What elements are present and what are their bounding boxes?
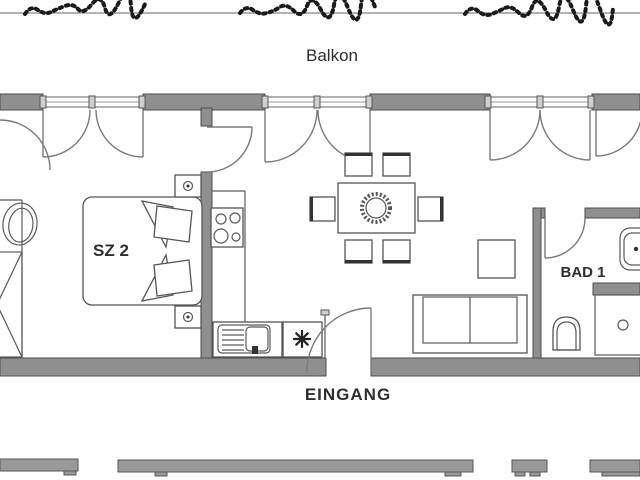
kitchen-sink-icon <box>213 322 282 357</box>
shower-icon <box>0 252 22 357</box>
toilet-icon <box>553 317 580 350</box>
garden-edge <box>0 0 640 25</box>
exterior-wall-bottom <box>0 358 640 376</box>
label-bedroom-2: SZ 2 <box>93 241 129 260</box>
shrub-row-icon <box>240 0 375 20</box>
floor-plan-drawing: Balkon SZ 2 BAD 1 EINGANG <box>0 0 640 480</box>
door-right-room <box>596 110 640 156</box>
shower-icon <box>595 295 640 355</box>
living-area <box>413 240 527 353</box>
coffee-table <box>478 240 515 278</box>
floor-plan-page: Balkon SZ 2 BAD 1 EINGANG <box>0 0 640 480</box>
balcony-french-door-3 <box>490 110 590 160</box>
balcony-door-glazing-2 <box>262 96 372 108</box>
balcony-door-glazing-1 <box>40 96 145 108</box>
shrub-row-icon <box>25 0 145 18</box>
stove-icon <box>211 208 243 247</box>
faucet-icon <box>252 346 258 354</box>
wall-bath-partition <box>593 283 640 295</box>
wall-living-bath <box>533 208 541 358</box>
balcony-door-glazing-3 <box>485 96 594 108</box>
balcony-french-door-1 <box>43 110 143 157</box>
door-bathroom-1 <box>545 218 585 258</box>
pillow-icon <box>154 206 192 242</box>
chair <box>383 153 410 176</box>
door-bedroom-2 <box>207 127 252 172</box>
chair <box>345 240 372 263</box>
chair <box>383 240 410 263</box>
wall-bath-top <box>585 208 640 218</box>
wall-stub-bedroom <box>201 108 212 126</box>
nightstand-lamp <box>175 175 201 197</box>
washbasin-icon <box>620 228 640 270</box>
nightstand-lamp <box>175 306 201 328</box>
washbasin-icon <box>0 201 40 247</box>
sofa <box>413 295 527 353</box>
label-entrance: EINGANG <box>305 385 391 404</box>
chair <box>310 197 335 221</box>
bathroom-left-partial <box>0 200 40 357</box>
pillow-icon <box>154 260 192 296</box>
label-balcony: Balkon <box>306 46 358 65</box>
chair <box>418 197 443 221</box>
dining-set <box>310 153 443 263</box>
lower-wall-bars <box>0 459 640 476</box>
label-bathroom-1: BAD 1 <box>560 264 605 281</box>
shrub-row-icon <box>465 0 613 25</box>
chair <box>345 153 372 176</box>
